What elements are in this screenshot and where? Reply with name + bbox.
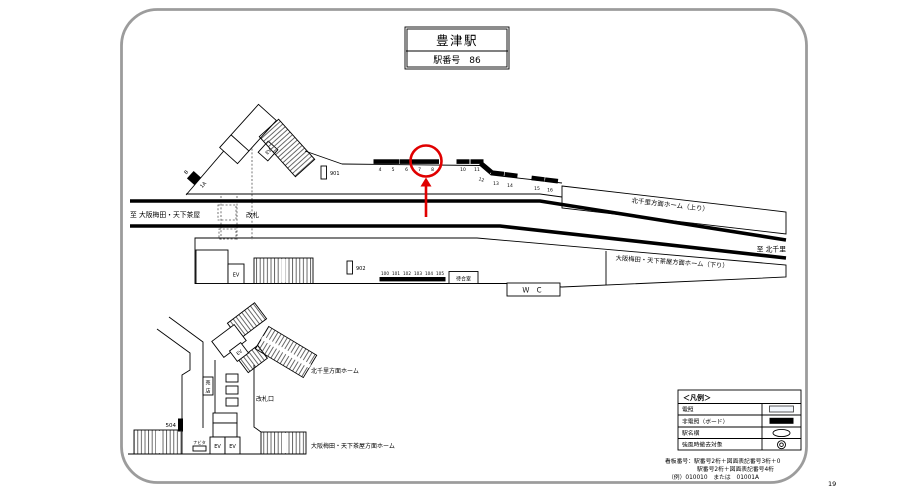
legend-label-3: 強風時撤去対象 xyxy=(682,441,723,449)
sign-number: 5 xyxy=(392,167,395,173)
down-sign-row: 100 101 102 103 104 105 xyxy=(380,271,446,282)
note-line-1: 看板番号：駅番号2桁＋図面表記番号3桁＋0 xyxy=(665,457,781,465)
sign-1a-label: 1A xyxy=(199,180,208,189)
concourse-up-platform-label: 北千里方面ホーム xyxy=(311,367,359,375)
concourse-down-platform-label: 大阪梅田・天下茶屋方面ホーム xyxy=(311,442,395,450)
sign-number: 4 xyxy=(379,167,382,173)
ticket-gate-machine xyxy=(226,398,238,406)
sign-number: 7 xyxy=(418,167,421,173)
sign-902-box xyxy=(347,261,353,274)
notes: 看板番号：駅番号2桁＋図面表記番号3桁＋0 駅番号2桁＋図面表記番号4桁 （例）… xyxy=(665,457,781,481)
sign-number: 15 xyxy=(534,186,540,192)
sign-marker-b-1a: B 1A xyxy=(182,166,209,191)
ticket-gate-machine xyxy=(226,374,238,382)
stairs-gap xyxy=(282,259,286,283)
board-sign xyxy=(380,277,391,281)
sign-number: 12 xyxy=(478,176,485,184)
waiting-room-label: 待合室 xyxy=(456,276,471,283)
shop-label-top: 売 xyxy=(205,380,210,387)
sign-number: 10 xyxy=(460,167,466,173)
direction-left-label: 至 大阪梅田・天下茶屋 xyxy=(130,210,200,219)
ev1-label: EV xyxy=(214,444,221,450)
toilet-label: Ｗ Ｃ xyxy=(522,286,544,294)
board-sign xyxy=(402,277,413,281)
board-sign xyxy=(374,159,387,164)
sign-number: 11 xyxy=(474,167,480,173)
board-sign xyxy=(387,159,400,164)
legend-title: ＜凡例＞ xyxy=(683,393,711,402)
board-sign-16 xyxy=(545,177,558,183)
board-sign-14 xyxy=(504,172,517,178)
concourse-wall-left xyxy=(157,329,190,430)
arrow-head xyxy=(421,178,432,187)
sign-number: 104 xyxy=(425,271,433,276)
board-sign-504 xyxy=(178,419,183,432)
elevator-shaft-upper xyxy=(213,413,237,423)
note-line-2: 駅番号2桁＋図面表記番号4桁 xyxy=(697,465,774,473)
legend: ＜凡例＞ 電照 非電照（ボード） 駅名横 強風時撤去対象 xyxy=(678,390,801,450)
board-sign xyxy=(424,277,435,281)
title-box: 豊津駅 駅番号 86 xyxy=(405,27,509,69)
stairs-gap xyxy=(156,431,160,453)
legend-label-0: 電照 xyxy=(682,407,694,414)
shop-label-bottom: 店 xyxy=(205,388,210,395)
sign-number: 6 xyxy=(405,167,408,173)
ev2-label: EV xyxy=(229,444,236,450)
concourse-stairs-wide xyxy=(255,326,316,377)
board-sign xyxy=(391,277,402,281)
sign-number: 16 xyxy=(547,188,553,194)
board-sign xyxy=(413,277,424,281)
page-number: 19 xyxy=(828,480,836,488)
concourse-level-diagram: EV 北千里方面ホーム 売 店 504 改札口 EV EV ナビタ 大阪梅田・天… xyxy=(128,303,395,454)
ticket-gate-machine xyxy=(226,386,238,394)
sign-901-label: 901 xyxy=(330,171,340,177)
down-elevator-label: EV xyxy=(233,273,240,279)
board-sign xyxy=(413,159,426,164)
sign-504-label: 504 xyxy=(166,423,177,429)
sign-number: 14 xyxy=(507,183,513,189)
stairs-gap xyxy=(282,433,286,453)
board-sign-12 xyxy=(479,161,493,174)
board-sign xyxy=(457,159,470,164)
sign-number: 13 xyxy=(493,181,499,187)
station-map-svg: 19 豊津駅 駅番号 86 EV B xyxy=(0,0,919,491)
navita-box xyxy=(193,446,206,451)
track-level-diagram: EV B 1A 901 4 5 6 7 xyxy=(130,104,786,296)
sign-902-label: 902 xyxy=(356,266,366,272)
station-number: 駅番号 86 xyxy=(433,54,481,66)
navita-label: ナビタ xyxy=(193,439,206,446)
upper-platform-edge xyxy=(342,164,562,183)
legend-symbol-black-rect xyxy=(770,418,794,424)
legend-label-1: 非電照（ボード） xyxy=(682,417,728,425)
sign-number: 101 xyxy=(392,271,400,276)
station-name: 豊津駅 xyxy=(436,33,478,48)
page: 19 豊津駅 駅番号 86 EV B xyxy=(0,0,919,491)
sign-number: 8 xyxy=(431,167,434,173)
sign-number: 102 xyxy=(403,271,411,276)
sign-901-box xyxy=(321,166,327,179)
board-sign-15 xyxy=(531,176,544,182)
legend-label-2: 駅名横 xyxy=(682,429,700,437)
ticket-gate-label: 改札 xyxy=(246,210,260,219)
legend-symbol-oval xyxy=(773,429,790,436)
down-platform-building xyxy=(196,250,228,284)
sign-number: 105 xyxy=(436,271,444,276)
elevator-shaft-lower xyxy=(213,423,237,437)
sign-number: 103 xyxy=(414,271,422,276)
sign-number: 100 xyxy=(381,271,389,276)
direction-right-label: 至 北千里 xyxy=(757,245,787,254)
board-sign xyxy=(426,159,439,164)
concourse-ticket-gate-label: 改札口 xyxy=(256,395,274,403)
note-line-3: （例）010010 または 01001A xyxy=(668,473,759,481)
board-sign xyxy=(435,277,446,281)
legend-symbol-light-rect xyxy=(770,406,794,412)
red-annotation xyxy=(411,146,442,218)
upper-platform-wall-base xyxy=(186,194,562,197)
down-platform-name: 大阪梅田・天下茶屋方面ホーム（下り） xyxy=(615,253,729,270)
gate-crossing-zone-lower xyxy=(219,229,236,239)
sign-b-label: B xyxy=(183,169,190,176)
